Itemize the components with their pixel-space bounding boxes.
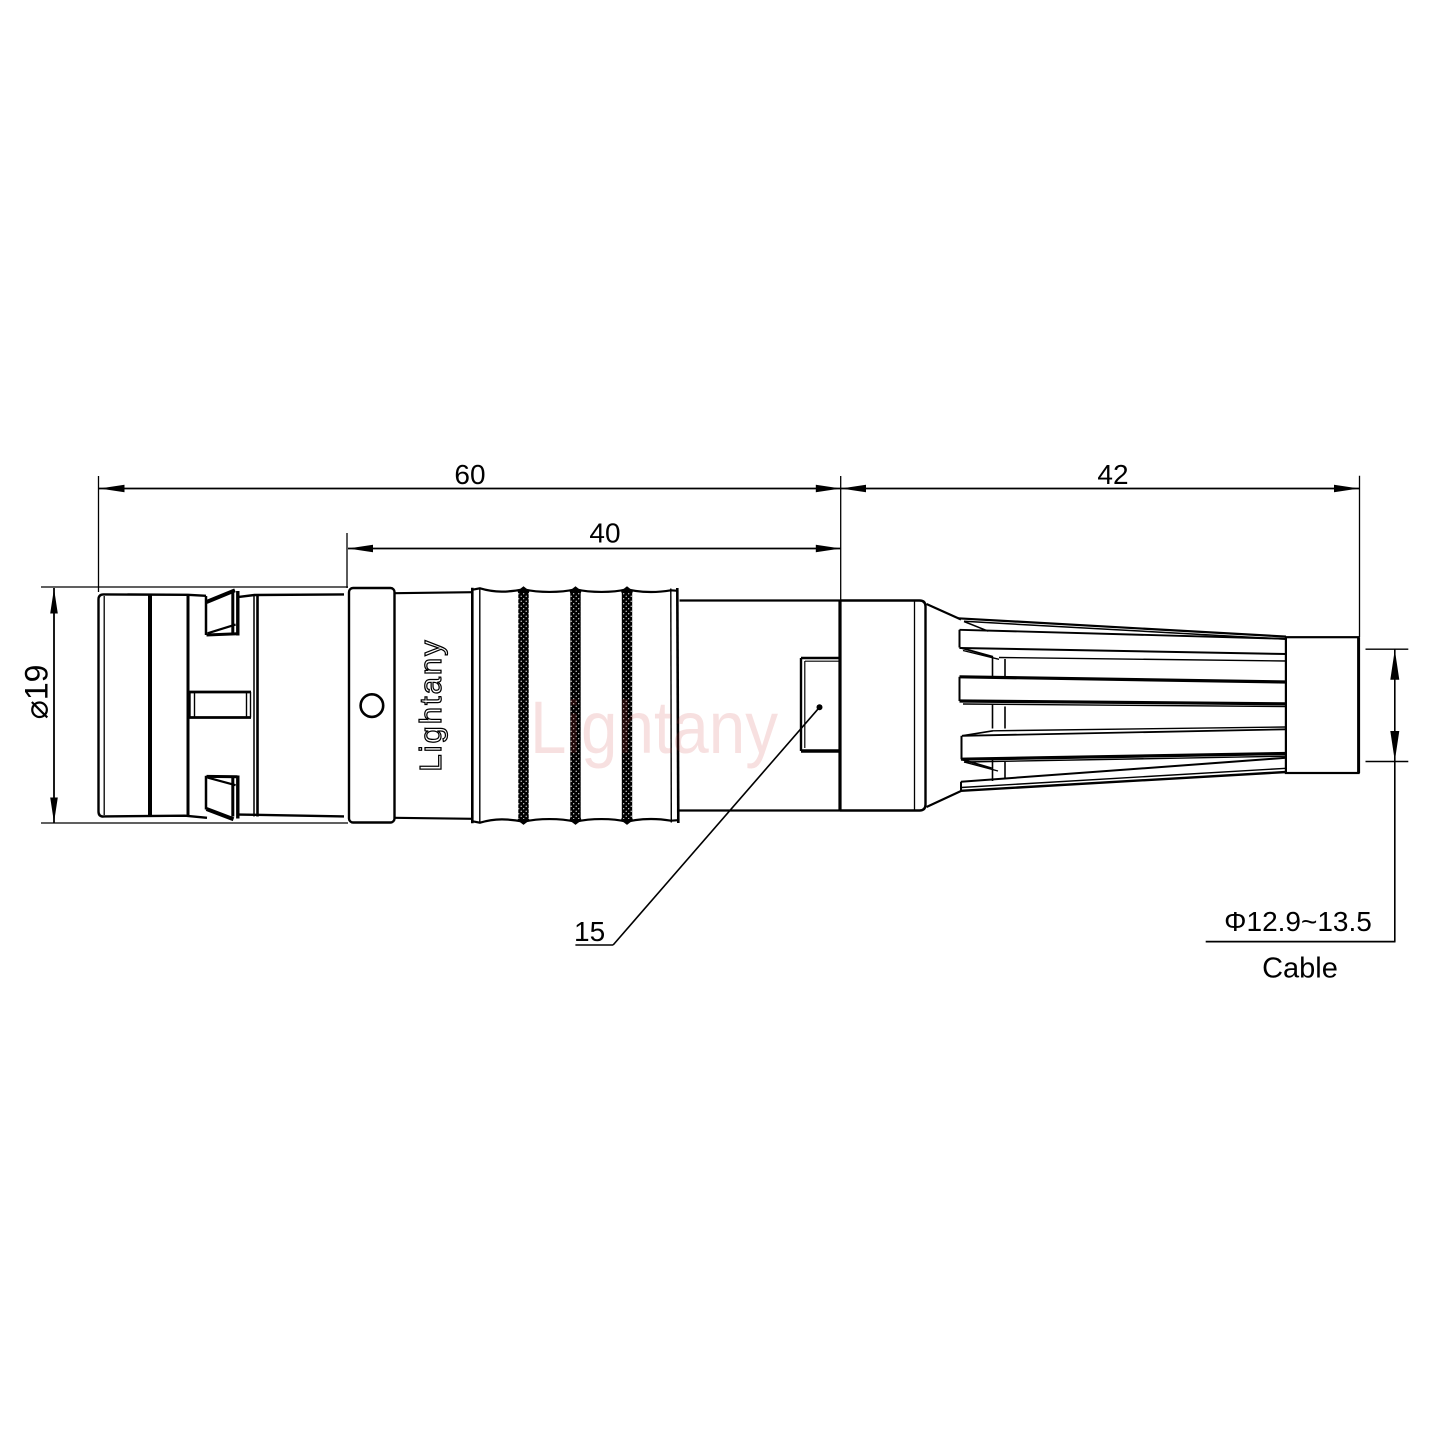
svg-text:Cable: Cable xyxy=(1262,953,1338,985)
svg-text:40: 40 xyxy=(589,518,620,549)
svg-text:Φ12.9~13.5: Φ12.9~13.5 xyxy=(1224,906,1372,937)
svg-text:42: 42 xyxy=(1097,459,1128,490)
svg-text:15: 15 xyxy=(574,916,605,947)
svg-text:60: 60 xyxy=(454,459,485,490)
svg-text:Lightany: Lightany xyxy=(413,638,448,771)
svg-text:⌀19: ⌀19 xyxy=(19,665,55,720)
svg-text:Lightany: Lightany xyxy=(530,686,778,769)
